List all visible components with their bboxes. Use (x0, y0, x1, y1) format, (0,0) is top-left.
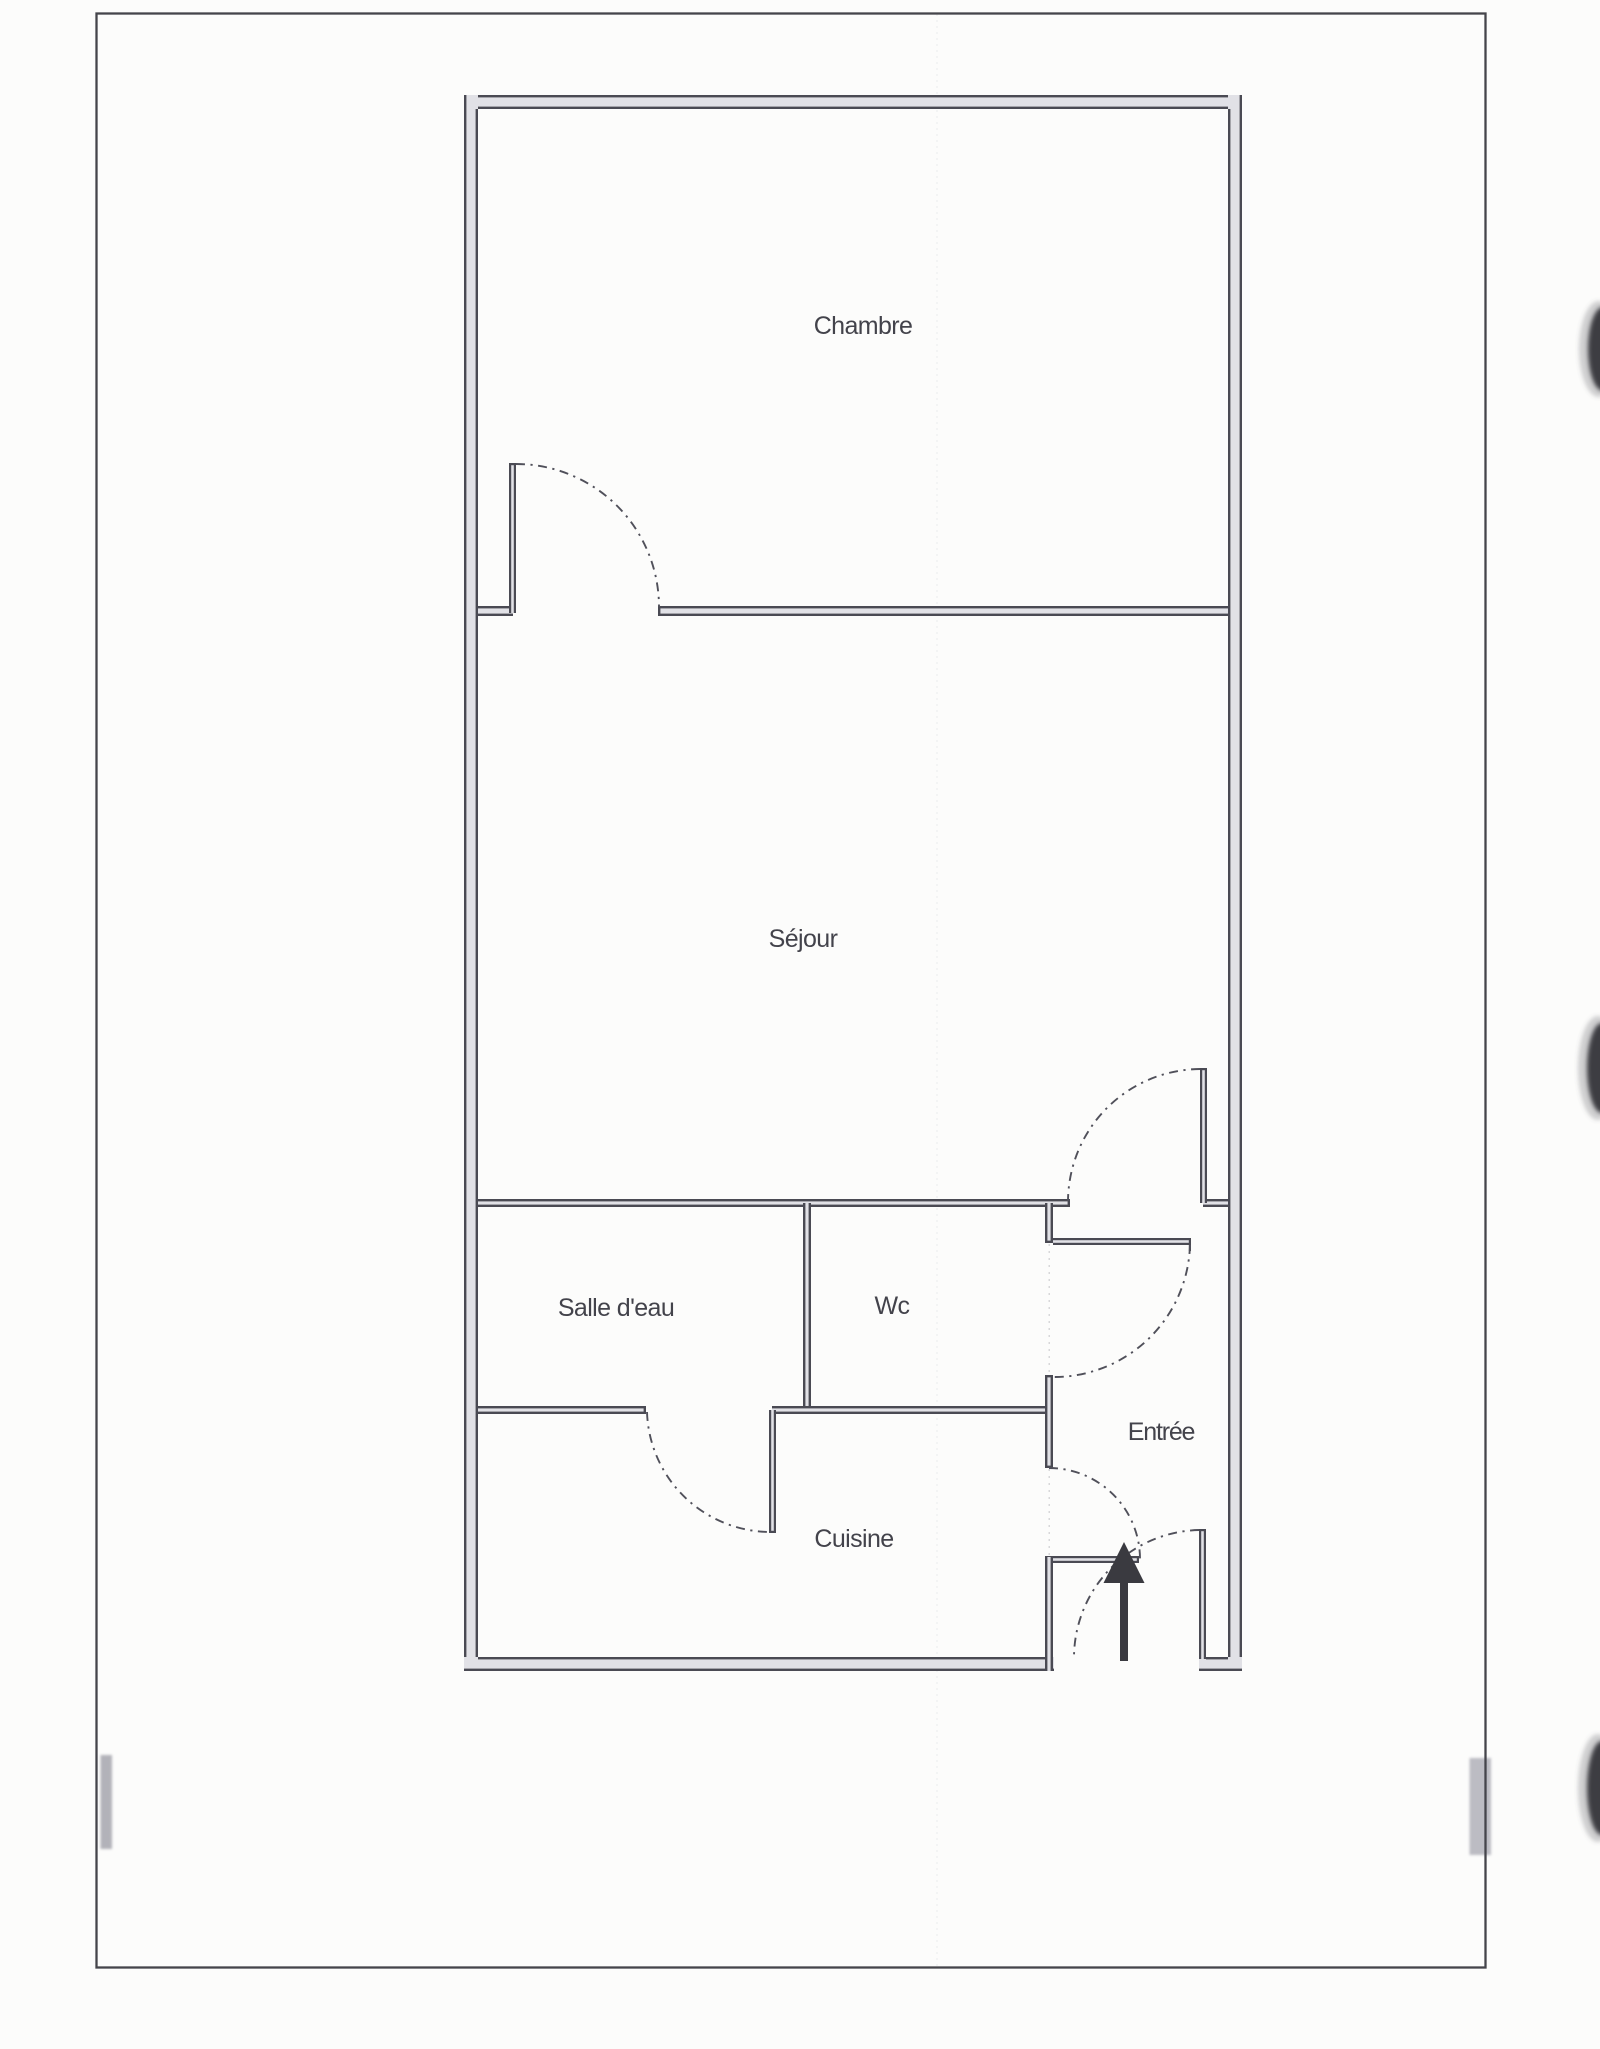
svg-text:Séjour: Séjour (769, 925, 838, 953)
svg-text:Entrée: Entrée (1128, 1418, 1195, 1446)
svg-text:Wc: Wc (875, 1292, 910, 1320)
svg-text:Chambre: Chambre (814, 312, 913, 340)
svg-text:Cuisine: Cuisine (814, 1525, 893, 1553)
svg-text:Salle d'eau: Salle d'eau (558, 1294, 674, 1322)
